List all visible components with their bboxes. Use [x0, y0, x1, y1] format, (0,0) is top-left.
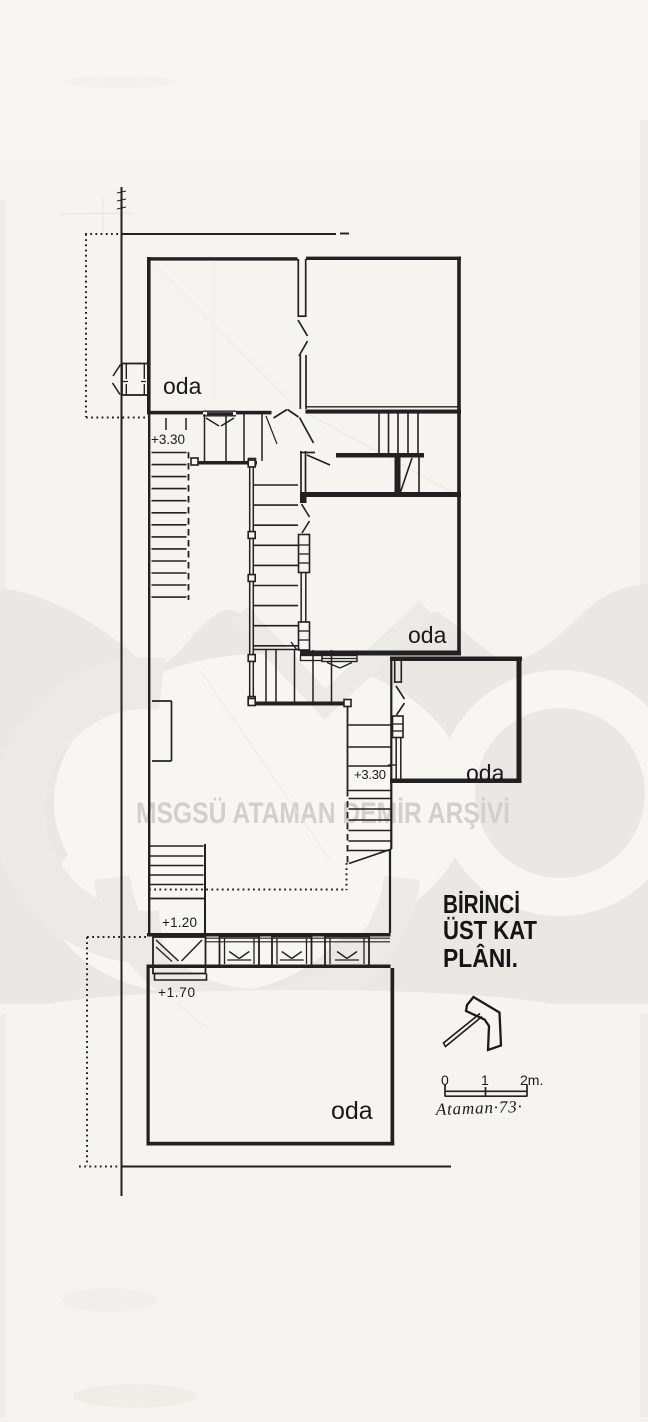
svg-text:2m.: 2m. — [520, 1072, 543, 1088]
svg-text:1: 1 — [481, 1072, 489, 1088]
svg-text:oda: oda — [408, 622, 447, 648]
svg-text:Ataman·73·: Ataman·73· — [434, 1097, 522, 1119]
svg-text:oda: oda — [466, 760, 505, 786]
svg-text:+1.70: +1.70 — [158, 985, 195, 1000]
svg-text:oda: oda — [331, 1097, 373, 1125]
svg-text:ÜST KAT: ÜST KAT — [443, 915, 537, 945]
svg-text:MSGSÜ ATAMAN DEMİR ARŞİVİ: MSGSÜ ATAMAN DEMİR ARŞİVİ — [136, 797, 510, 830]
svg-text:PLÂNI.: PLÂNI. — [443, 943, 518, 973]
svg-text:+3.30: +3.30 — [151, 432, 185, 447]
svg-text:+1.20: +1.20 — [162, 915, 197, 930]
svg-text:oda: oda — [163, 373, 202, 399]
svg-text:+3.30: +3.30 — [354, 767, 386, 782]
